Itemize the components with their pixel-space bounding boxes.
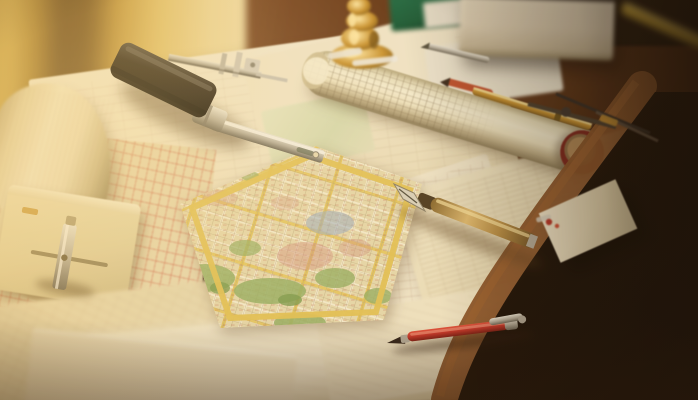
cross-tool (24, 210, 115, 301)
drafting-tools (0, 0, 698, 400)
notepad-clip (22, 207, 39, 216)
red-pen (385, 312, 535, 358)
desk-scene (0, 0, 698, 400)
eraser-bits (536, 214, 559, 228)
gold-pencil (471, 87, 592, 131)
silver-pen (421, 41, 491, 64)
yellow-pencil (620, 2, 698, 50)
fountain-pen (394, 184, 546, 274)
